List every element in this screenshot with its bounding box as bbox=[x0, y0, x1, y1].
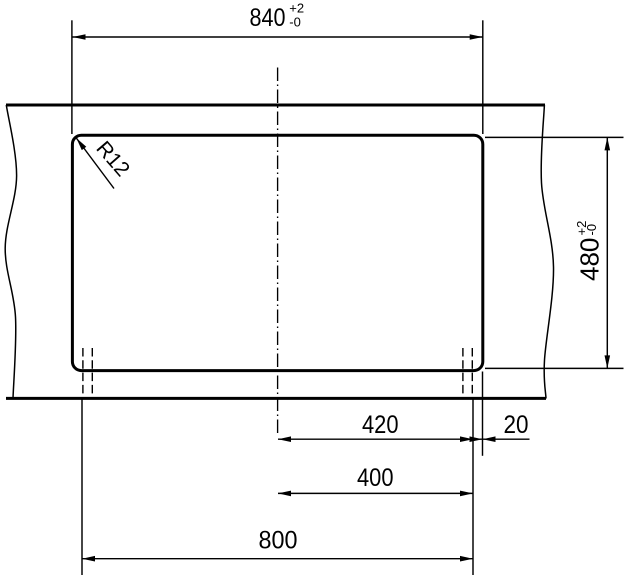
svg-text:+2: +2 bbox=[289, 0, 304, 15]
svg-text:20: 20 bbox=[504, 412, 529, 439]
svg-text:420: 420 bbox=[362, 412, 399, 439]
svg-text:400: 400 bbox=[357, 465, 394, 492]
svg-text:-0: -0 bbox=[584, 224, 599, 236]
svg-text:480: 480 bbox=[575, 238, 605, 281]
svg-text:800: 800 bbox=[259, 528, 298, 555]
svg-text:-0: -0 bbox=[289, 14, 301, 29]
svg-text:840: 840 bbox=[250, 5, 286, 32]
